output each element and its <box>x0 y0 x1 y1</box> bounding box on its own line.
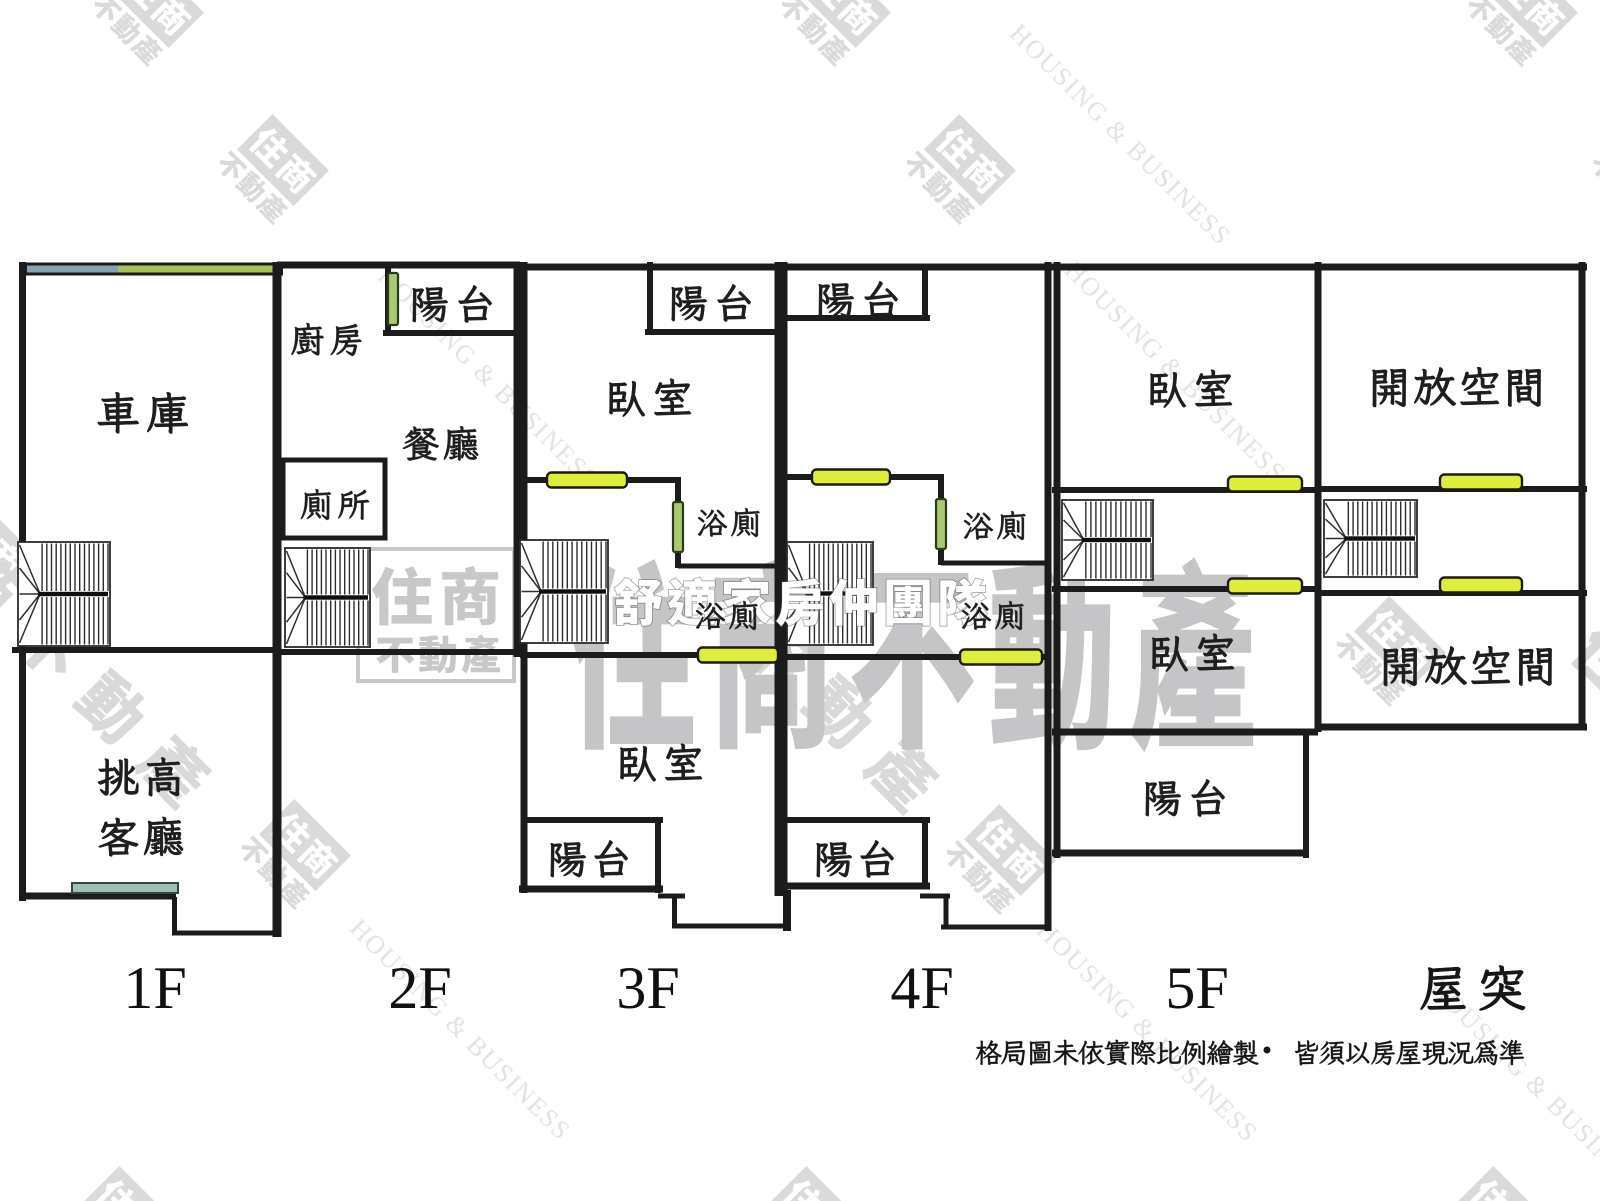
svg-text:1F: 1F <box>123 955 186 1021</box>
svg-text:4F: 4F <box>890 955 953 1021</box>
svg-text:5F: 5F <box>1165 955 1228 1021</box>
svg-text:3F: 3F <box>616 955 679 1021</box>
svg-text:2F: 2F <box>388 955 451 1021</box>
